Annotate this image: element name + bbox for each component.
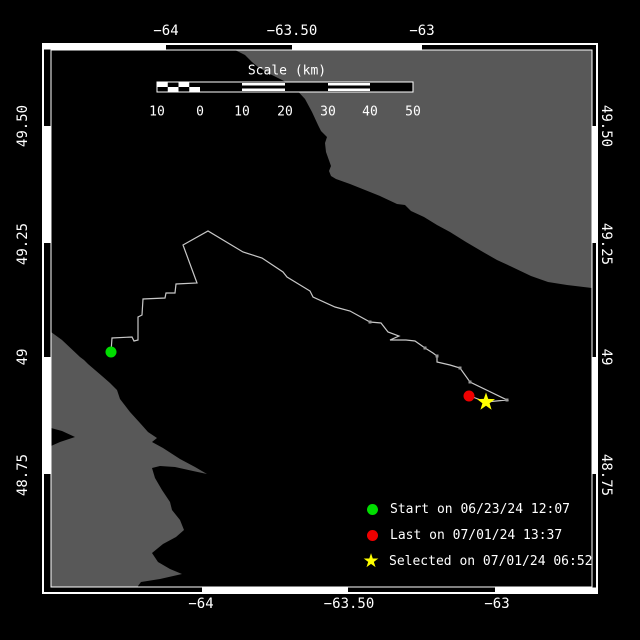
legend-label-start: Start on 06/23/24 12:07: [390, 502, 570, 517]
fix-marker-3[interactable]: [459, 367, 462, 370]
top-border-segment-1: [166, 45, 292, 50]
bottom-border-segment-0: [43, 588, 202, 593]
right-axis-label-1: 49.25: [598, 223, 614, 265]
left-border-segment-0: [44, 50, 51, 126]
last-point-marker[interactable]: [464, 391, 475, 402]
scalebar-checker-cell: [189, 87, 200, 92]
top-border-segment-2: [292, 45, 422, 50]
legend-item-start: Start on 06/23/24 12:07: [362, 499, 570, 519]
legend-item-selected: ★ Selected on 07/01/24 06:52: [361, 551, 593, 571]
top-border-segment-0: [43, 45, 166, 50]
top-axis-label-1: −63.50: [267, 23, 318, 39]
last-marker-icon: [362, 525, 382, 545]
scalebar-tick-2: 10: [234, 105, 250, 120]
left-border-segment-1: [44, 126, 51, 243]
right-axis-label-2: 49: [598, 349, 614, 366]
start-marker-icon: [362, 499, 382, 519]
scalebar-tick-0: 10: [149, 105, 165, 120]
top-axis-label-0: −64: [153, 23, 178, 39]
right-axis-label-0: 49.50: [598, 105, 614, 147]
scalebar-tick-3: 20: [277, 105, 293, 120]
bottom-axis-label-0: −64: [188, 596, 213, 612]
left-axis-label-2: 49: [15, 349, 31, 366]
scalebar-tick-4: 30: [320, 105, 336, 120]
left-border-segment-3: [44, 357, 51, 474]
bottom-axis-label-1: −63.50: [324, 596, 375, 612]
top-axis-label-2: −63: [409, 23, 434, 39]
fix-marker-2[interactable]: [436, 355, 439, 358]
legend-label-last: Last on 07/01/24 13:37: [390, 528, 562, 543]
top-border-segment-3: [422, 45, 597, 50]
left-border-segment-2: [44, 243, 51, 357]
scalebar-stripe-gap: [328, 86, 370, 89]
fix-marker-5[interactable]: [506, 399, 509, 402]
bottom-axis-label-2: −63: [484, 596, 509, 612]
start-point-marker[interactable]: [106, 347, 117, 358]
scalebar-tick-5: 40: [362, 105, 378, 120]
left-axis-label-0: 49.50: [15, 105, 31, 147]
legend-label-selected: Selected on 07/01/24 06:52: [389, 554, 593, 569]
scalebar-title: Scale (km): [248, 64, 326, 79]
left-border-segment-4: [44, 474, 51, 587]
fix-marker-1[interactable]: [424, 347, 427, 350]
left-axis-label-3: 48.75: [15, 454, 31, 496]
left-axis-label-1: 49.25: [15, 223, 31, 265]
scalebar-checker-cell: [157, 82, 168, 87]
scalebar-stripe-gap: [242, 86, 285, 89]
bottom-border-segment-1: [202, 588, 348, 593]
selected-marker-icon: ★: [361, 551, 381, 571]
scalebar-tick-1: 0: [196, 105, 204, 120]
legend-item-last: Last on 07/01/24 13:37: [362, 525, 562, 545]
scalebar-checker-cell: [179, 82, 190, 87]
scalebar-tick-6: 50: [405, 105, 421, 120]
fix-marker-0[interactable]: [369, 321, 372, 324]
scalebar-checker-cell: [168, 87, 179, 92]
track-map-plot: −64 −63.50 −63 −64 −63.50 −63 49.50 49.2…: [0, 0, 640, 640]
bottom-border-segment-3: [495, 588, 597, 593]
right-axis-label-3: 48.75: [598, 454, 614, 496]
bottom-border-segment-2: [348, 588, 495, 593]
fix-marker-4[interactable]: [469, 381, 472, 384]
